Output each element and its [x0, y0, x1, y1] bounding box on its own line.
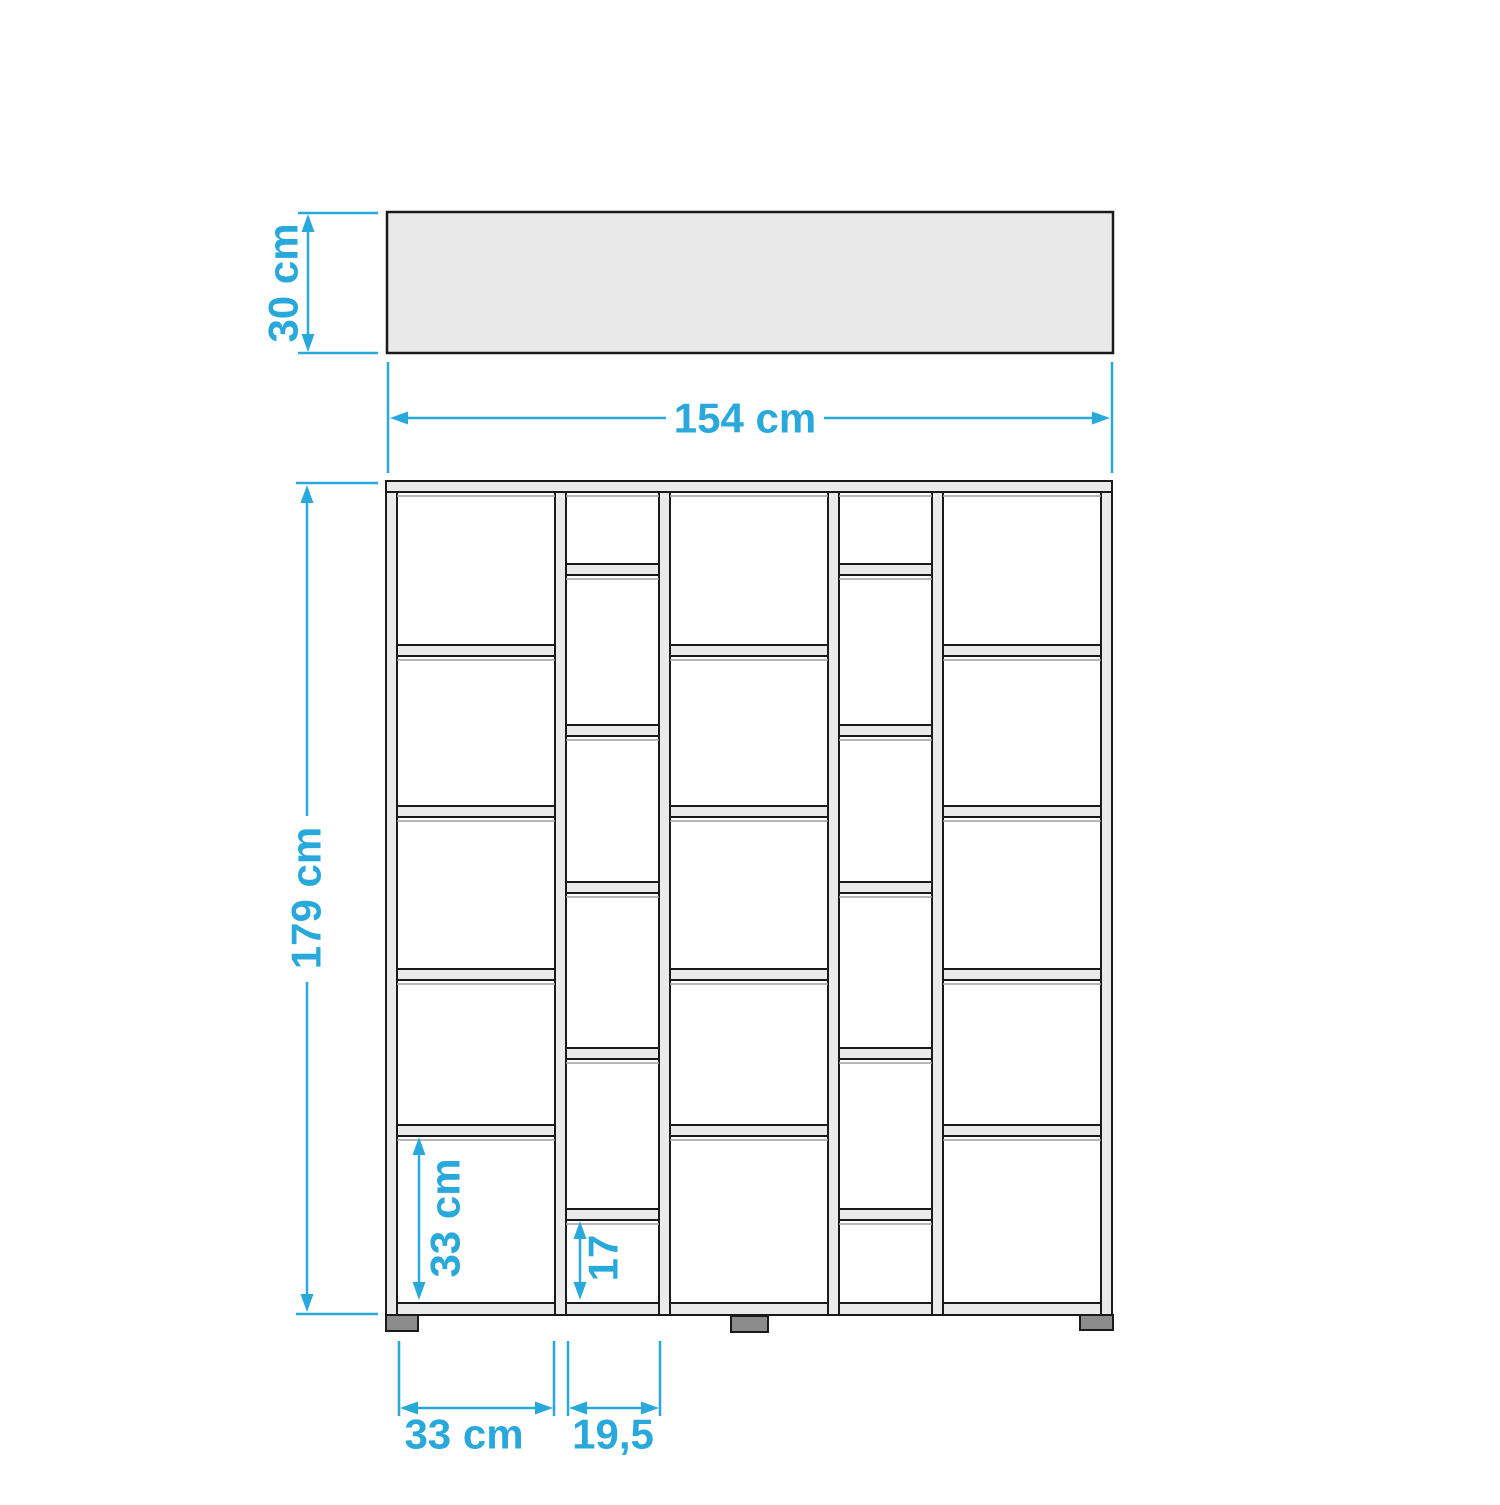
- wide-column-shelves: [397, 645, 1101, 1136]
- shelf-board: [839, 725, 932, 736]
- arrowhead-down-icon: [574, 1282, 587, 1300]
- foot-left: [386, 1315, 418, 1331]
- shelf-board: [397, 645, 555, 656]
- shelf-board: [839, 1048, 932, 1059]
- arrowhead-left-icon: [390, 412, 408, 425]
- shelf-board: [943, 1125, 1101, 1136]
- narrow-column-width-dimension-label: 19,5: [572, 1411, 654, 1458]
- top-view: 30 cm 154 cm: [260, 212, 1114, 473]
- vertical-post: [659, 481, 670, 1315]
- shelf-edge-highlight-lines: [397, 496, 1101, 1224]
- shelf-board: [566, 1048, 659, 1059]
- shelf-unit: [386, 481, 1113, 1332]
- vertical-post: [386, 481, 397, 1315]
- width-dimension: 154 cm: [388, 362, 1112, 473]
- shelf-board: [839, 882, 932, 893]
- small-cell-height-dimension: 17: [574, 1221, 627, 1300]
- arrowhead-down-icon: [413, 1282, 426, 1300]
- arrowhead-up-icon: [301, 485, 314, 503]
- wide-column-width-dimension-label: 33 cm: [404, 1411, 523, 1458]
- diagram-canvas: 30 cm 154 cm 179 cm: [0, 0, 1500, 1500]
- width-dimension-label: 154 cm: [674, 395, 816, 442]
- arrowhead-right-icon: [535, 1402, 553, 1415]
- vertical-post: [828, 481, 839, 1315]
- shelf-board: [566, 1209, 659, 1220]
- depth-dimension-label: 30 cm: [260, 223, 307, 342]
- shelf-board: [670, 969, 828, 980]
- vertical-posts: [386, 481, 1112, 1315]
- narrow-column-shelves: [566, 564, 932, 1220]
- top-board: [386, 481, 1112, 492]
- shelf-board: [943, 806, 1101, 817]
- height-dimension-label: 179 cm: [283, 827, 330, 969]
- shelf-board: [670, 806, 828, 817]
- shelf-board: [566, 564, 659, 575]
- arrowhead-right-icon: [1092, 412, 1110, 425]
- shelf-board: [670, 1125, 828, 1136]
- height-dimension: 179 cm: [283, 483, 379, 1314]
- arrowhead-down-icon: [301, 1294, 314, 1312]
- bottom-board: [386, 1303, 1112, 1315]
- shelf-board: [397, 1125, 555, 1136]
- shelf-board: [397, 969, 555, 980]
- shelf-board: [839, 1209, 932, 1220]
- shelf-board: [670, 645, 828, 656]
- shelf-board: [839, 564, 932, 575]
- shelf-board: [943, 645, 1101, 656]
- foot-right: [1080, 1315, 1113, 1330]
- cell-height-dimension-label: 33 cm: [422, 1158, 469, 1277]
- shelf-board: [566, 882, 659, 893]
- cell-height-dimension: 33 cm: [413, 1137, 469, 1300]
- shelf-board: [566, 725, 659, 736]
- vertical-post: [932, 481, 943, 1315]
- feet: [386, 1315, 1113, 1332]
- vertical-post: [555, 481, 566, 1315]
- depth-dimension: 30 cm: [260, 213, 379, 353]
- furniture-dimension-diagram: 30 cm 154 cm 179 cm: [0, 0, 1500, 1500]
- narrow-column-width-dimension: 19,5: [568, 1341, 660, 1458]
- shelf-board: [943, 969, 1101, 980]
- foot-center: [731, 1316, 768, 1332]
- top-panel: [387, 212, 1113, 353]
- front-view: 179 cm: [283, 481, 1114, 1458]
- wide-column-width-dimension: 33 cm: [399, 1341, 554, 1458]
- vertical-post: [1101, 481, 1112, 1315]
- small-cell-height-dimension-label: 17: [580, 1235, 627, 1282]
- shelf-board: [397, 806, 555, 817]
